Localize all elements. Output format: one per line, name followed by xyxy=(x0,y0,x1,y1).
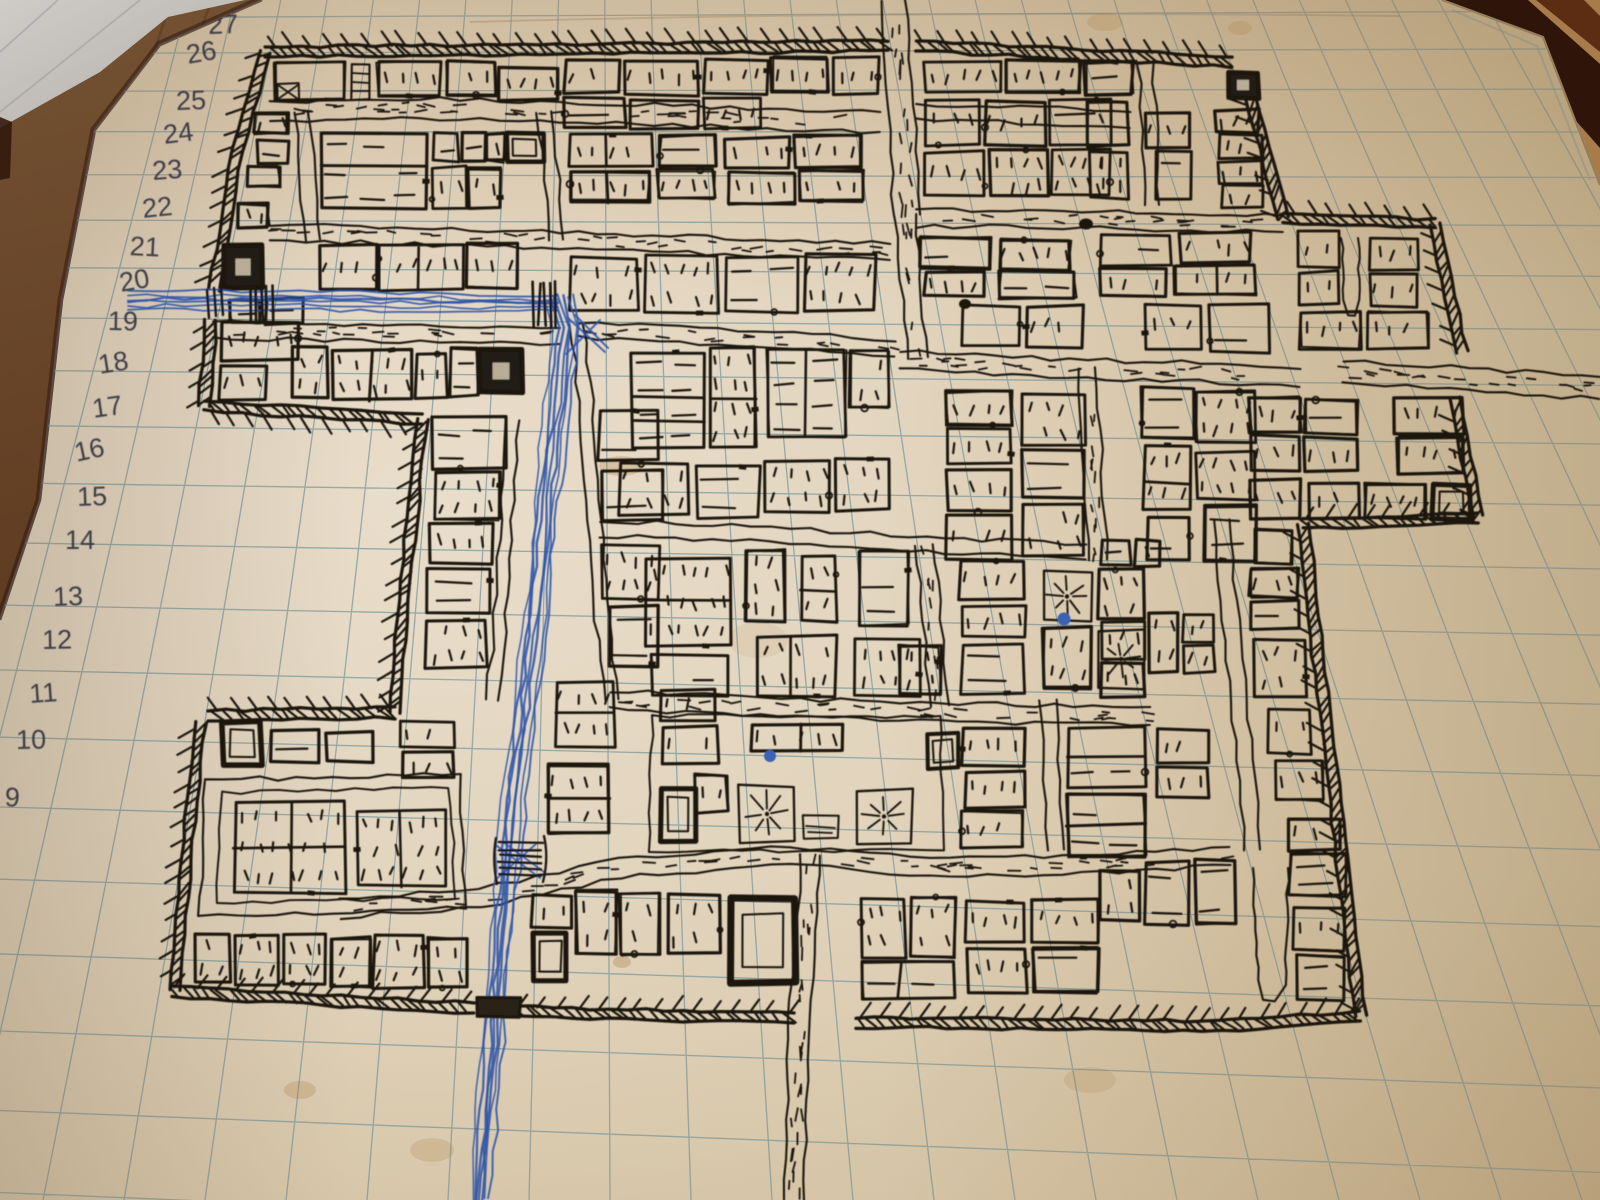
svg-text:17: 17 xyxy=(90,390,124,424)
svg-text:12: 12 xyxy=(42,624,73,655)
svg-text:19: 19 xyxy=(108,306,139,337)
svg-text:18: 18 xyxy=(96,345,130,379)
svg-text:10: 10 xyxy=(16,724,47,755)
svg-text:11: 11 xyxy=(28,677,58,709)
svg-text:26: 26 xyxy=(184,35,219,70)
svg-text:24: 24 xyxy=(162,116,195,149)
svg-text:16: 16 xyxy=(72,432,108,468)
svg-text:15: 15 xyxy=(77,481,108,512)
svg-text:23: 23 xyxy=(151,154,183,186)
svg-text:13: 13 xyxy=(53,581,84,612)
svg-text:25: 25 xyxy=(176,85,207,116)
svg-text:14: 14 xyxy=(65,525,95,555)
svg-text:22: 22 xyxy=(141,191,174,224)
svg-text:20: 20 xyxy=(117,263,152,298)
svg-text:9: 9 xyxy=(4,782,21,813)
svg-text:21: 21 xyxy=(129,231,161,263)
